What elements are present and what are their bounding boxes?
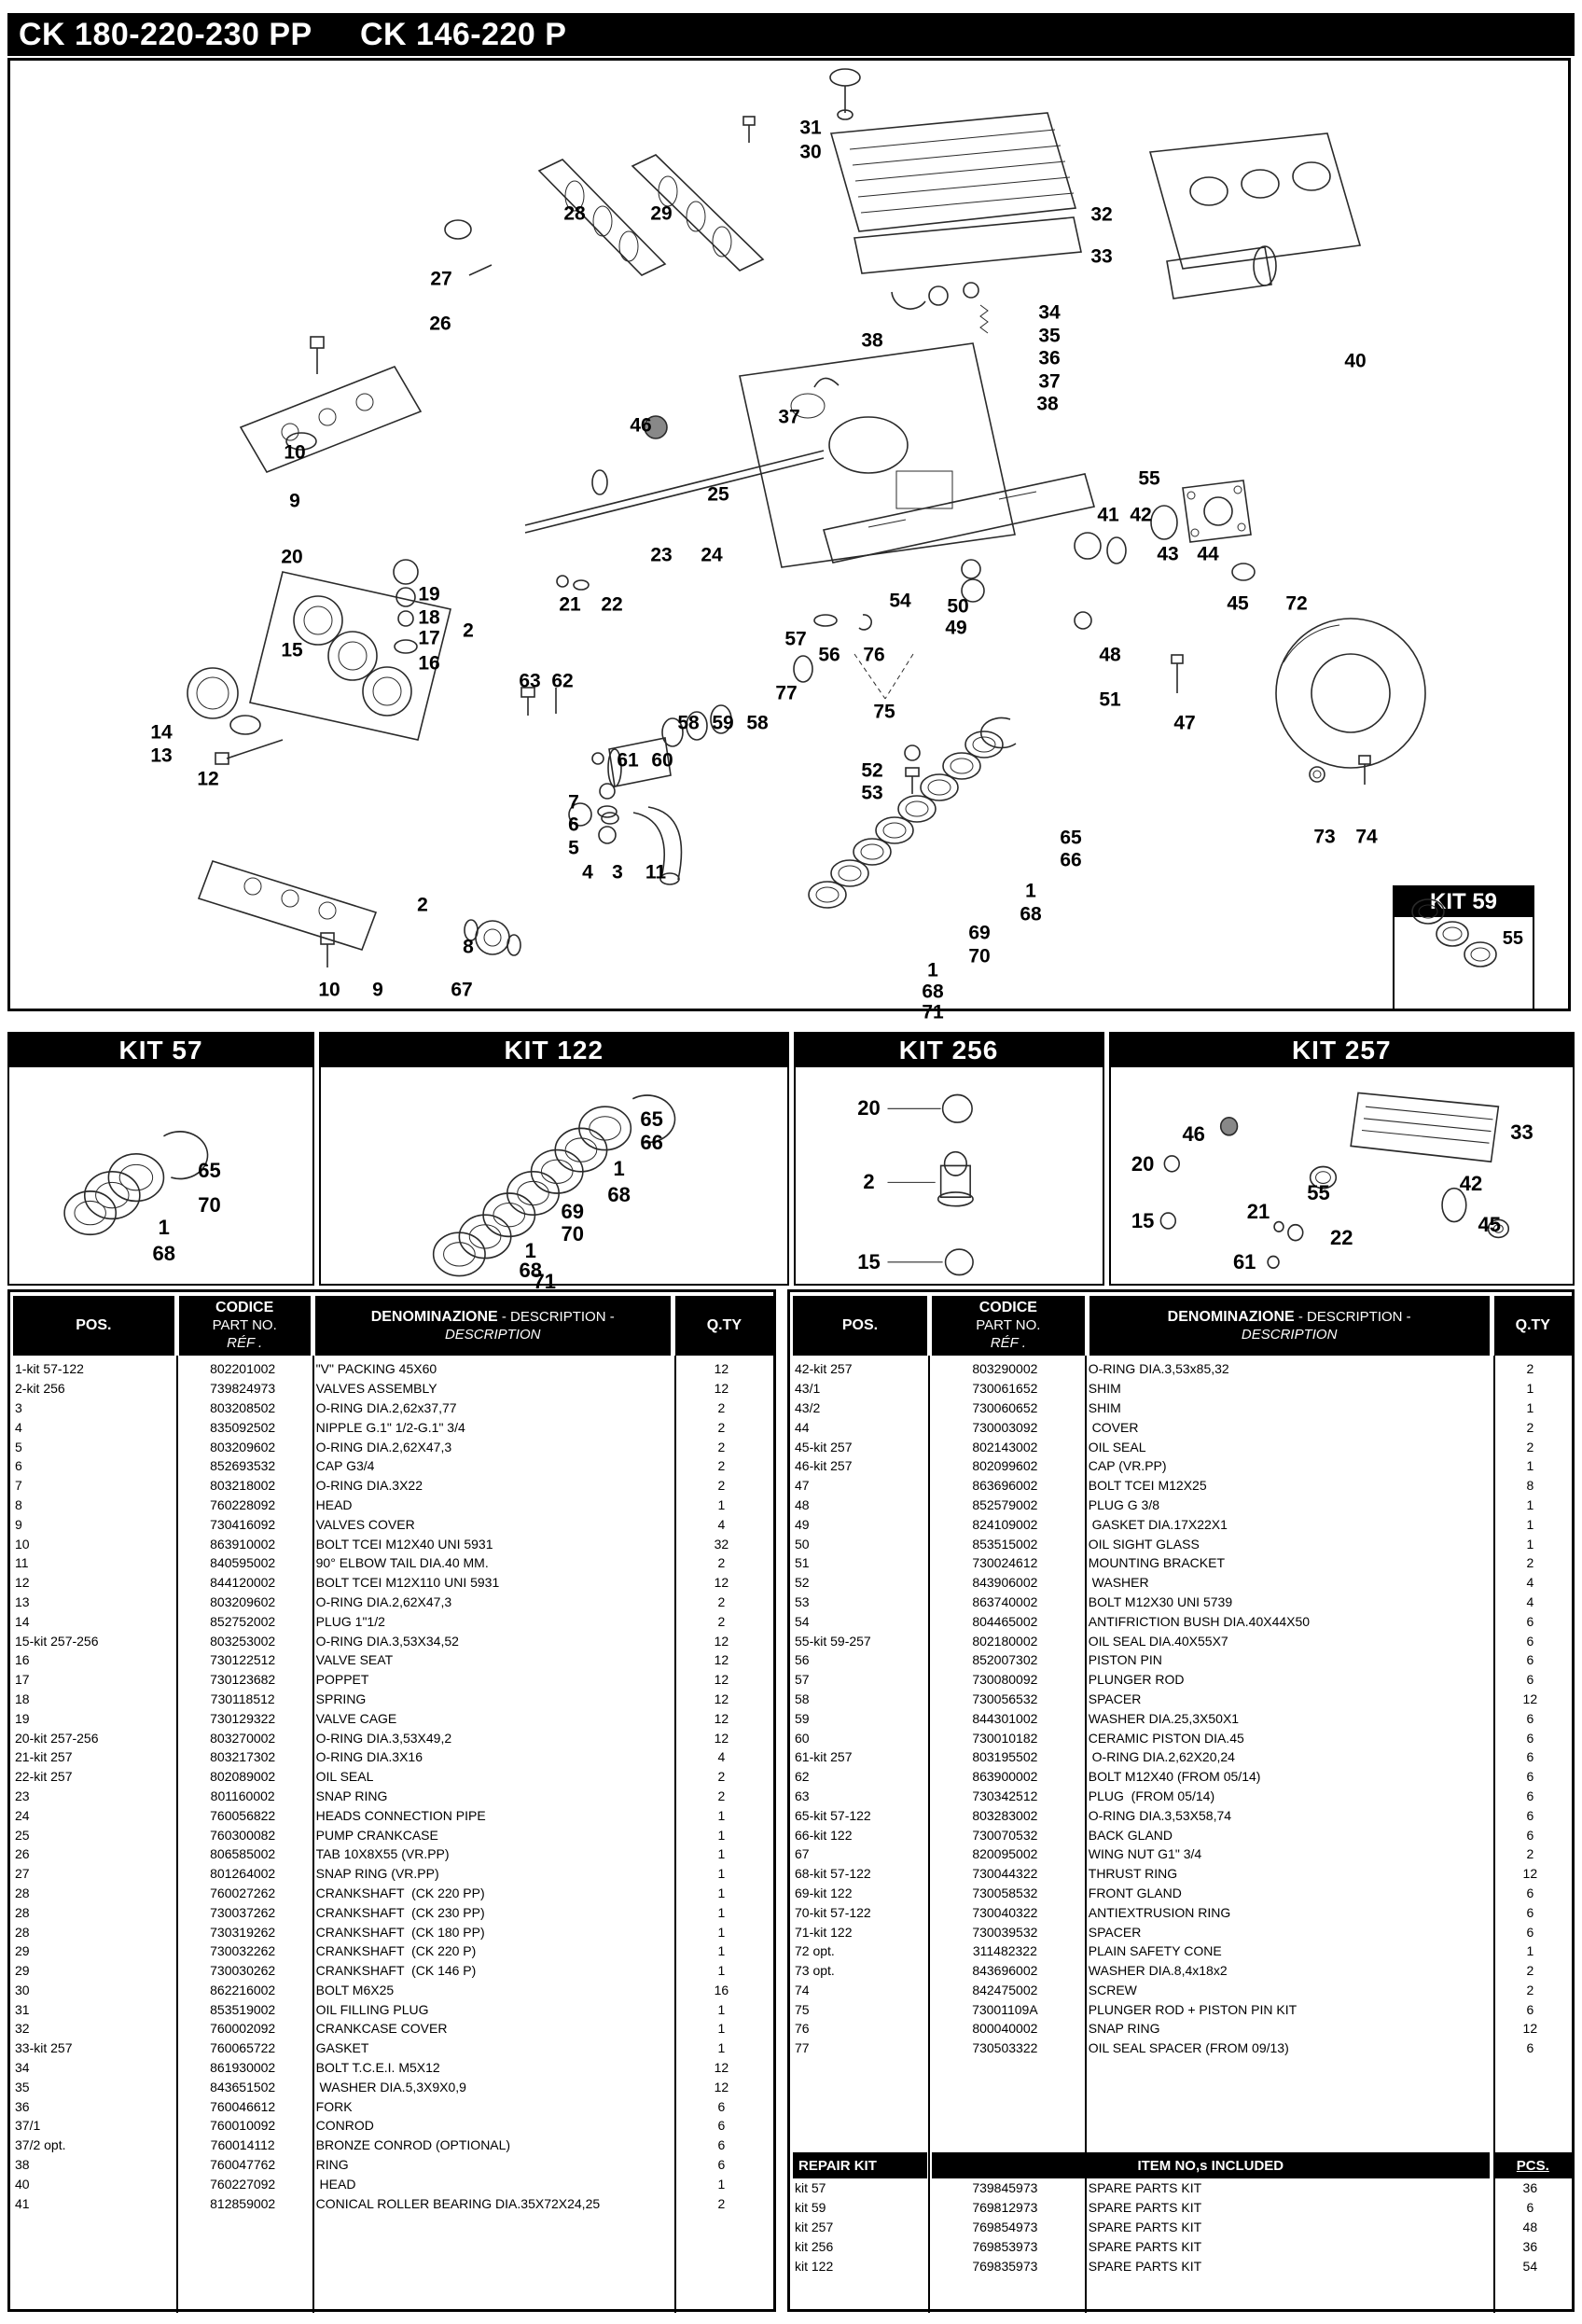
table-row: 65-kit 57-122803283002O-RING DIA.3,53X58… (790, 1805, 1572, 1825)
table-row: 2-kit 256739824973VALVES ASSEMBLY12 (10, 1379, 773, 1399)
table-row: 40760227092 HEAD1 (10, 2174, 773, 2193)
part-callout: 36 (1038, 349, 1060, 369)
table-row: 8760228092HEAD1 (10, 1496, 773, 1515)
table-cell: WASHER (1083, 1575, 1489, 1590)
table-cell: 2 (670, 1458, 773, 1473)
table-cell: 1 (670, 1828, 773, 1843)
part-callout: 35 (1038, 327, 1060, 346)
table-row: 59844301002WASHER DIA.25,3X50X16 (790, 1708, 1572, 1728)
table-cell: 803283002 (927, 1808, 1083, 1823)
table-cell: 840595002 (175, 1555, 311, 1570)
table-row: 45-kit 257802143002OIL SEAL2 (790, 1437, 1572, 1456)
table-row: 21-kit 257803217302O-RING DIA.3X164 (10, 1747, 773, 1767)
table-cell: 12 (670, 2080, 773, 2094)
table-cell: 730058532 (927, 1886, 1083, 1900)
repair-kit-items-label: ITEM NO,s INCLUDED (932, 2152, 1490, 2178)
table-cell: 760002092 (175, 2021, 311, 2036)
table-cell: 26 (10, 1846, 175, 1861)
table-cell: 2-kit 256 (10, 1381, 175, 1396)
part-callout: 32 (1090, 205, 1112, 225)
table-cell: 29 (10, 1963, 175, 1978)
table-cell: 63 (790, 1788, 927, 1803)
part-callout: 4 (582, 863, 593, 883)
part-callout: 1 (927, 961, 938, 981)
table-cell: 6 (1489, 1769, 1572, 1784)
table-row: 47863696002BOLT TCEI M12X258 (790, 1476, 1572, 1496)
table-cell: 44 (790, 1420, 927, 1435)
part-callout: 28 (563, 204, 585, 224)
table-cell: 42-kit 257 (790, 1361, 927, 1376)
table-cell: 6 (1489, 1808, 1572, 1823)
table-row: 43/2730060652SHIM1 (790, 1399, 1572, 1418)
table-cell: 311482322 (927, 1943, 1083, 1958)
table-cell: O-RING DIA.2,62X47,3 (311, 1440, 670, 1454)
table-cell: 71-kit 122 (790, 1925, 927, 1940)
table-cell: "V" PACKING 45X60 (311, 1361, 670, 1376)
table-cell: BACK GLAND (1083, 1828, 1489, 1843)
table-cell: 2 (1489, 1846, 1572, 1861)
table-cell: 14 (10, 1614, 175, 1629)
table-cell: 760046612 (175, 2099, 311, 2114)
table-row: 37/2 opt.760014112BRONZE CONROD (OPTIONA… (10, 2136, 773, 2155)
table-cell: 6 (670, 2099, 773, 2114)
table-cell: 37/2 opt. (10, 2137, 175, 2152)
table-cell: kit 256 (790, 2239, 927, 2254)
table-cell: 852693532 (175, 1458, 311, 1473)
table-cell: CRANKSHAFT (CK 180 PP) (311, 1925, 670, 1940)
table-cell: 1 (670, 1497, 773, 1512)
table-cell: 23 (10, 1788, 175, 1803)
col-header-qty: Q.TY (675, 1296, 773, 1356)
table-cell: 730039532 (927, 1925, 1083, 1940)
kit-257-sketch (1111, 1067, 1574, 1284)
table-cell: SPRING (311, 1691, 670, 1706)
part-callout: 72 (1285, 594, 1307, 614)
table-cell: O-RING DIA.2,62X20,24 (1083, 1749, 1489, 1764)
table-row: 74842475002SCREW2 (790, 1981, 1572, 2000)
table-cell: 863740002 (927, 1594, 1083, 1609)
table-cell: 59 (790, 1711, 927, 1726)
table-cell: CRANKCASE COVER (311, 2021, 670, 2036)
table-cell: BOLT M6X25 (311, 1983, 670, 1997)
col-header-description: DENOMINAZIONE - DESCRIPTION - DESCRIPTIO… (1089, 1296, 1490, 1356)
table-cell: ANTIFRICTION BUSH DIA.40X44X50 (1083, 1614, 1489, 1629)
part-callout: 1 (1025, 882, 1036, 901)
table-row: 49824109002 GASKET DIA.17X22X11 (790, 1514, 1572, 1534)
table-cell: 33-kit 257 (10, 2040, 175, 2055)
part-callout: 15 (857, 1252, 880, 1273)
part-callout: 57 (784, 630, 806, 649)
table-cell: 60 (790, 1731, 927, 1746)
table-cell: 2 (670, 1420, 773, 1435)
table-cell: HEAD (311, 2177, 670, 2192)
table-cell: SPACER (1083, 1691, 1489, 1706)
table-row: 68-kit 57-122730044322THRUST RING12 (790, 1864, 1572, 1884)
table-cell: WASHER DIA.8,4x18x2 (1083, 1963, 1489, 1978)
kit-57-body: 6570168 (9, 1067, 312, 1284)
table-cell: 2 (670, 2196, 773, 2211)
table-cell: 1 (1489, 1497, 1572, 1512)
table-row: 44730003092 COVER2 (790, 1417, 1572, 1437)
table-cell: 760047762 (175, 2157, 311, 2172)
part-callout: 75 (873, 703, 895, 722)
table-cell: 65-kit 57-122 (790, 1808, 927, 1823)
kit-256-title: KIT 256 (796, 1034, 1103, 1067)
table-cell: CRANKSHAFT (CK 146 P) (311, 1963, 670, 1978)
table-cell: 760227092 (175, 2177, 311, 2192)
table-cell: 16 (10, 1652, 175, 1667)
table-row: 6852693532CAP G3/42 (10, 1456, 773, 1476)
table-cell: O-RING DIA.3,53X58,74 (1083, 1808, 1489, 1823)
table-row: 23801160002SNAP RING2 (10, 1787, 773, 1806)
table-row: 37/1760010092CONROD6 (10, 2116, 773, 2136)
kit-122-title: KIT 122 (321, 1034, 786, 1067)
table-cell: CAP G3/4 (311, 1458, 670, 1473)
table-cell: 43/2 (790, 1400, 927, 1415)
part-callout: 47 (1173, 714, 1195, 733)
part-callout: 70 (968, 947, 990, 967)
table-cell: 863910002 (175, 1537, 311, 1552)
table-cell: 46-kit 257 (790, 1458, 927, 1473)
table-cell: SPARE PARTS KIT (1083, 2239, 1489, 2254)
right-table-body-wrap: 42-kit 257803290002O-RING DIA.3,53x85,32… (790, 1356, 1572, 2313)
part-callout: 3 (612, 863, 623, 883)
part-callout: 37 (1038, 372, 1060, 392)
table-cell: 75 (790, 2002, 927, 2017)
part-callout: 48 (1099, 646, 1120, 665)
table-cell: 800040002 (927, 2021, 1083, 2036)
table-row: 1-kit 57-122802201002"V" PACKING 45X6012 (10, 1359, 773, 1379)
table-cell: 2 (670, 1478, 773, 1493)
table-cell: 37/1 (10, 2118, 175, 2133)
table-cell: FRONT GLAND (1083, 1886, 1489, 1900)
part-callout: 38 (861, 331, 882, 351)
table-cell: PLUG G 3/8 (1083, 1497, 1489, 1512)
table-cell: FORK (311, 2099, 670, 2114)
parts-table-left: POS. CODICE PART NO. RÉF . DENOMINAZIONE… (7, 1289, 776, 2312)
table-cell: 760056822 (175, 1808, 311, 1823)
table-cell: CAP (VR.PP) (1083, 1458, 1489, 1473)
table-cell: 16 (670, 1983, 773, 1997)
table-cell: 22-kit 257 (10, 1769, 175, 1784)
part-callout: 2 (417, 896, 428, 915)
table-cell: 52 (790, 1575, 927, 1590)
table-row: 72 opt.311482322PLAIN SAFETY CONE1 (790, 1941, 1572, 1961)
part-callout: 30 (799, 143, 821, 162)
part-callout: 16 (418, 654, 439, 674)
table-cell: 7 (10, 1478, 175, 1493)
table-cell: 730061652 (927, 1381, 1083, 1396)
table-cell: 12 (10, 1575, 175, 1590)
part-callout: 5 (568, 839, 579, 858)
part-callout: 66 (1060, 851, 1081, 870)
table-row: 24760056822HEADS CONNECTION PIPE1 (10, 1805, 773, 1825)
table-cell: CONROD (311, 2118, 670, 2133)
table-cell: 36 (1489, 2180, 1572, 2195)
table-row: 34861930002BOLT T.C.E.I. M5X1212 (10, 2058, 773, 2078)
exploded-diagram-sketch (10, 61, 1574, 1014)
table-cell: 843906002 (927, 1575, 1083, 1590)
table-cell: 70-kit 57-122 (790, 1905, 927, 1920)
part-callout: 10 (318, 981, 340, 1000)
table-row: 67820095002WING NUT G1" 3/42 (790, 1844, 1572, 1864)
part-callout: 37 (778, 408, 799, 427)
part-callout: 20 (1131, 1154, 1154, 1175)
table-row: 28760027262CRANKSHAFT (CK 220 PP)1 (10, 1884, 773, 1903)
table-cell: 54 (1489, 2259, 1572, 2274)
table-cell: 730070532 (927, 1828, 1083, 1843)
table-cell: 72 opt. (790, 1943, 927, 1958)
table-cell: SNAP RING (311, 1788, 670, 1803)
part-callout: 60 (651, 751, 673, 771)
table-cell: 863900002 (927, 1769, 1083, 1784)
table-row: 31853519002OIL FILLING PLUG1 (10, 1999, 773, 2019)
table-cell: 13 (10, 1594, 175, 1609)
table-row: 15-kit 257-256803253002O-RING DIA.3,53X3… (10, 1631, 773, 1650)
table-cell: 31 (10, 2002, 175, 2017)
parts-catalog-page: CK 180-220-230 PP CK 146-220 P (0, 0, 1582, 2324)
col-header-qty: Q.TY (1494, 1296, 1572, 1356)
table-cell: 4 (670, 1749, 773, 1764)
repair-kit-header: REPAIR KIT ITEM NO,s INCLUDED PCS. (790, 2152, 1572, 2178)
table-cell: 760228092 (175, 1497, 311, 1512)
table-cell: 2 (670, 1788, 773, 1803)
table-cell: 2 (670, 1614, 773, 1629)
part-callout: 55 (1138, 469, 1159, 489)
table-cell: 6 (1489, 1614, 1572, 1629)
table-cell: 25 (10, 1828, 175, 1843)
left-table-body: 1-kit 57-122802201002"V" PACKING 45X6012… (10, 1356, 773, 2313)
table-row: 10863910002BOLT TCEI M12X40 UNI 593132 (10, 1534, 773, 1553)
table-cell: 842475002 (927, 1983, 1083, 1997)
table-cell: SCREW (1083, 1983, 1489, 1997)
table-cell: 1 (670, 2177, 773, 2192)
part-callout: 33 (1510, 1122, 1533, 1143)
table-cell: GASKET DIA.17X22X1 (1083, 1517, 1489, 1532)
part-callout: 45 (1478, 1215, 1501, 1235)
table-cell: 2 (1489, 1440, 1572, 1454)
table-cell: 6 (1489, 1731, 1572, 1746)
part-callout: 66 (640, 1133, 662, 1153)
table-cell: 739845973 (927, 2180, 1083, 2195)
table-cell: 54 (790, 1614, 927, 1629)
table-cell: 6 (1489, 1672, 1572, 1687)
table-cell: 73001109A (927, 2002, 1083, 2017)
table-row: 42-kit 257803290002O-RING DIA.3,53x85,32… (790, 1359, 1572, 1379)
part-callout: 9 (289, 492, 300, 511)
table-row: 25760300082PUMP CRANKCASE1 (10, 1825, 773, 1844)
part-callout: 29 (650, 204, 672, 224)
table-cell: WASHER DIA.5,3X9X0,9 (311, 2080, 670, 2094)
table-cell: 802099602 (927, 1458, 1083, 1473)
table-cell: 2 (1489, 1420, 1572, 1435)
table-cell: 803253002 (175, 1634, 311, 1649)
table-row: 60730010182CERAMIC PISTON DIA.456 (790, 1728, 1572, 1747)
table-cell: PLUG 1"1/2 (311, 1614, 670, 1629)
table-row: 38760047762RING6 (10, 2155, 773, 2175)
table-cell: CRANKSHAFT (CK 220 P) (311, 1943, 670, 1958)
table-row: 20-kit 257-256803270002O-RING DIA.3,53X4… (10, 1728, 773, 1747)
table-row: 54804465002ANTIFRICTION BUSH DIA.40X44X5… (790, 1611, 1572, 1631)
kit-59-box: KIT 59 55 (1393, 885, 1534, 1010)
table-cell: 61-kit 257 (790, 1749, 927, 1764)
table-cell: 730032262 (175, 1943, 311, 1958)
table-cell: OIL SEAL SPACER (FROM 09/13) (1083, 2040, 1489, 2055)
part-callout: 68 (607, 1185, 630, 1205)
part-callout: 9 (372, 981, 383, 1000)
part-callout: 65 (198, 1161, 220, 1181)
part-callout: 56 (818, 646, 840, 665)
table-cell: 36 (1489, 2239, 1572, 2254)
table-row: 3803208502O-RING DIA.2,62x37,772 (10, 1399, 773, 1418)
table-cell: HEAD (311, 1497, 670, 1512)
part-callout: 25 (707, 485, 729, 505)
table-cell: 34 (10, 2060, 175, 2075)
part-callout: 21 (1247, 1202, 1270, 1222)
table-cell: SHIM (1083, 1400, 1489, 1415)
table-cell: PLUNGER ROD (1083, 1672, 1489, 1687)
part-callout: 8 (463, 938, 474, 957)
table-cell: 803208502 (175, 1400, 311, 1415)
table-cell: 32 (670, 1537, 773, 1552)
part-callout: 24 (701, 546, 722, 565)
table-cell: 730123682 (175, 1672, 311, 1687)
table-cell: 21-kit 257 (10, 1749, 175, 1764)
part-callout: 27 (430, 270, 451, 289)
table-cell: 1 (1489, 1458, 1572, 1473)
table-cell: O-RING DIA.2,62x37,77 (311, 1400, 670, 1415)
table-cell: 812859002 (175, 2196, 311, 2211)
table-cell: 6 (670, 2118, 773, 2133)
table-cell: 801264002 (175, 1866, 311, 1881)
part-callout: 50 (947, 597, 968, 617)
table-cell: THRUST RING (1083, 1866, 1489, 1881)
table-cell: 28 (10, 1886, 175, 1900)
table-row: 61-kit 257803195502 O-RING DIA.2,62X20,2… (790, 1747, 1572, 1767)
table-cell: 1 (1489, 1537, 1572, 1552)
table-cell: 10 (10, 1537, 175, 1552)
table-row: 55-kit 59-257802180002OIL SEAL DIA.40X55… (790, 1631, 1572, 1650)
part-callout: 61 (1233, 1252, 1256, 1273)
table-row: kit 257769854973SPARE PARTS KIT48 (790, 2218, 1572, 2237)
table-cell: 730080092 (927, 1672, 1083, 1687)
table-cell: 1 (670, 2040, 773, 2055)
table-row: 14852752002PLUG 1"1/22 (10, 1611, 773, 1631)
part-callout: 77 (775, 684, 797, 703)
table-cell: 730037262 (175, 1905, 311, 1920)
table-row: 57730080092PLUNGER ROD6 (790, 1670, 1572, 1690)
table-cell: kit 59 (790, 2200, 927, 2215)
kit-57-title: KIT 57 (9, 1034, 312, 1067)
table-cell: 74 (790, 1983, 927, 1997)
kit-256-body: 20215 (796, 1067, 1103, 1284)
table-cell: SNAP RING (VR.PP) (311, 1866, 670, 1881)
table-cell: 801160002 (175, 1788, 311, 1803)
table-cell: GASKET (311, 2040, 670, 2055)
table-cell: CRANKSHAFT (CK 230 PP) (311, 1905, 670, 1920)
table-cell: BRONZE CONROD (OPTIONAL) (311, 2137, 670, 2152)
table-cell: 48 (790, 1497, 927, 1512)
table-cell: 12 (1489, 2021, 1572, 2036)
table-cell: 6 (1489, 1905, 1572, 1920)
table-cell: OIL SIGHT GLASS (1083, 1537, 1489, 1552)
table-cell: SPARE PARTS KIT (1083, 2220, 1489, 2234)
table-row: 7573001109APLUNGER ROD + PISTON PIN KIT6 (790, 1999, 1572, 2019)
table-row: 30862216002BOLT M6X2516 (10, 1981, 773, 2000)
table-cell: PLUG (FROM 05/14) (1083, 1788, 1489, 1803)
table-cell: WING NUT G1" 3/4 (1083, 1846, 1489, 1861)
part-callout: 7 (568, 793, 579, 813)
table-row: 76800040002SNAP RING12 (790, 2019, 1572, 2039)
table-cell: SPARE PARTS KIT (1083, 2180, 1489, 2195)
part-callout: 51 (1099, 690, 1120, 710)
table-row: 48852579002PLUG G 3/81 (790, 1496, 1572, 1515)
table-cell: 853515002 (927, 1537, 1083, 1552)
part-callout: 22 (1330, 1228, 1353, 1248)
table-cell: 730040322 (927, 1905, 1083, 1920)
col-header-pos: POS. (793, 1296, 927, 1356)
table-cell: 8 (10, 1497, 175, 1512)
table-row: 77730503322OIL SEAL SPACER (FROM 09/13)6 (790, 2039, 1572, 2058)
table-cell: COVER (1083, 1420, 1489, 1435)
part-callout: 17 (418, 629, 439, 648)
part-callout: 65 (1060, 828, 1081, 848)
table-cell: 1 (1489, 1381, 1572, 1396)
table-cell: 51 (790, 1555, 927, 1570)
table-row: kit 256769853973SPARE PARTS KIT36 (790, 2236, 1572, 2256)
parts-table-right: POS. CODICE PART NO. RÉF . DENOMINAZIONE… (787, 1289, 1575, 2312)
spacer (790, 2058, 1572, 2152)
table-cell: kit 122 (790, 2259, 927, 2274)
table-cell: 47 (790, 1478, 927, 1493)
table-row: 56852007302PISTON PIN6 (790, 1650, 1572, 1670)
table-cell: HEADS CONNECTION PIPE (311, 1808, 670, 1823)
table-cell: 1 (1489, 1517, 1572, 1532)
table-cell: 27 (10, 1866, 175, 1881)
part-callout: 58 (746, 714, 768, 733)
table-row: 9730416092VALVES COVER4 (10, 1514, 773, 1534)
table-cell: ANTIEXTRUSION RING (1083, 1905, 1489, 1920)
table-cell: 12 (1489, 1691, 1572, 1706)
table-cell: 1 (670, 1886, 773, 1900)
table-cell: 56 (790, 1652, 927, 1667)
part-callout: 13 (150, 746, 172, 766)
part-callout: 12 (197, 770, 218, 789)
table-cell: 1 (670, 2002, 773, 2017)
table-row: 27801264002SNAP RING (VR.PP)1 (10, 1864, 773, 1884)
table-cell: 12 (670, 1634, 773, 1649)
part-callout: 45 (1227, 594, 1248, 614)
table-row: 29730032262CRANKSHAFT (CK 220 P)1 (10, 1941, 773, 1961)
table-cell: 862216002 (175, 1983, 311, 1997)
table-cell: O-RING DIA.3,53X34,52 (311, 1634, 670, 1649)
table-cell: 1 (670, 1963, 773, 1978)
part-callout: 15 (281, 641, 302, 661)
part-callout: 67 (451, 981, 472, 1000)
part-callout: 44 (1197, 545, 1218, 564)
left-table-header: POS. CODICE PART NO. RÉF . DENOMINAZIONE… (10, 1292, 773, 1356)
table-row: 50853515002OIL SIGHT GLASS1 (790, 1534, 1572, 1553)
table-cell: PLAIN SAFETY CONE (1083, 1943, 1489, 1958)
table-row: kit 57739845973SPARE PARTS KIT36 (790, 2178, 1572, 2198)
table-cell: 6 (670, 2137, 773, 2152)
table-cell: 41 (10, 2196, 175, 2211)
table-cell: 730003092 (927, 1420, 1083, 1435)
part-callout: 68 (153, 1244, 175, 1264)
part-callout: 19 (418, 585, 439, 605)
table-cell: O-RING DIA.3,53x85,32 (1083, 1361, 1489, 1376)
table-cell: 12 (670, 1575, 773, 1590)
